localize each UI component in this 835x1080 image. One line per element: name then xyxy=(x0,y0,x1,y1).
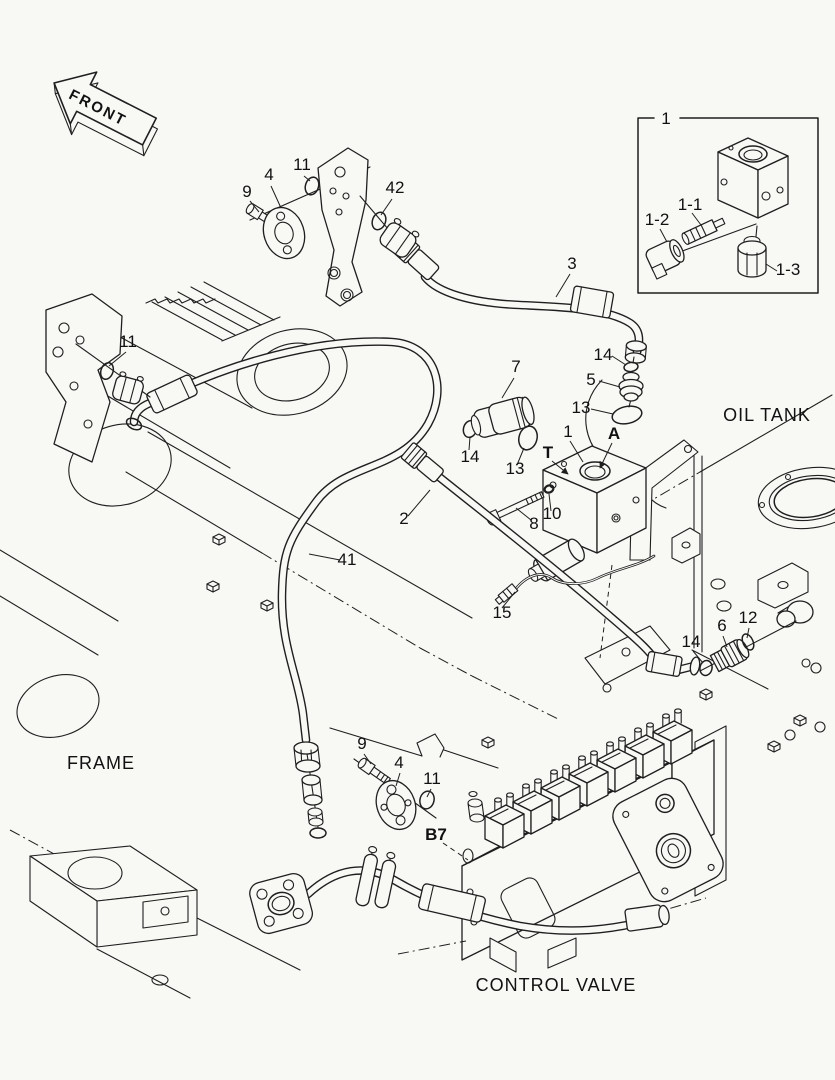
control-valve-label: CONTROL VALVE xyxy=(476,975,637,995)
o-ring-stack xyxy=(310,828,326,838)
inset-label-1-2: 1-2 xyxy=(645,210,670,229)
callout-9-top: 9 xyxy=(242,182,251,201)
elbow-7-assembly xyxy=(462,395,540,452)
oil-tank-label: OIL TANK xyxy=(723,405,811,425)
callout-4-bottom: 4 xyxy=(394,753,403,772)
hose-flange xyxy=(247,871,315,936)
bracket-left xyxy=(46,294,122,462)
inset-nut xyxy=(738,237,766,278)
flange-4-bottom xyxy=(370,775,423,835)
parts-diagram-page: 9 4 11 42 3 14 5 13 7 14 13 1 2 8 10 11 … xyxy=(0,0,835,1080)
o-ring-13-a xyxy=(611,404,644,427)
bottom-parts-cluster xyxy=(354,757,468,860)
frame-label: FRAME xyxy=(67,753,135,773)
callout-2: 2 xyxy=(399,509,408,528)
hose-41 xyxy=(125,342,438,740)
port-label-t: T xyxy=(543,443,554,462)
callout-12: 12 xyxy=(739,608,758,627)
callout-11-bottom: 11 xyxy=(423,769,441,788)
callout-14-a: 14 xyxy=(594,345,613,364)
callout-14-b: 14 xyxy=(461,447,480,466)
callout-7: 7 xyxy=(511,357,520,376)
callout-15: 15 xyxy=(493,603,512,622)
callout-9-bottom: 9 xyxy=(357,734,366,753)
inset-label-1-1: 1-1 xyxy=(678,195,703,214)
inset-coil xyxy=(644,237,689,279)
callout-8: 8 xyxy=(529,514,538,533)
port-label-b7: B7 xyxy=(425,825,447,844)
o-ring-14-a xyxy=(623,362,638,373)
elbow-fitting-7 xyxy=(468,395,537,441)
fitting-5 xyxy=(619,373,643,402)
hose41-fitting-stack xyxy=(294,742,326,838)
callout-1-main: 1 xyxy=(563,422,572,441)
callout-6: 6 xyxy=(717,616,726,635)
fitting-6 xyxy=(709,637,751,673)
callout-14-c: 14 xyxy=(682,632,701,651)
inset-label-1-3: 1-3 xyxy=(776,260,801,279)
o-ring-42 xyxy=(370,210,388,231)
fitting-6-cluster xyxy=(699,621,796,677)
diagram-canvas: 9 4 11 42 3 14 5 13 7 14 13 1 2 8 10 11 … xyxy=(0,0,835,1080)
flange-4-top xyxy=(257,202,311,264)
callout-13-b: 13 xyxy=(506,459,525,478)
callout-3: 3 xyxy=(567,254,576,273)
callout-13-a: 13 xyxy=(572,398,591,417)
callout-10: 10 xyxy=(543,504,562,523)
clamp-left xyxy=(111,371,145,405)
hose-2-fitting xyxy=(401,442,446,484)
callout-11-left: 11 xyxy=(119,332,137,351)
callout-11-top: 11 xyxy=(293,155,311,174)
callout-42: 42 xyxy=(386,178,405,197)
inset-spool xyxy=(681,216,726,246)
front-direction-arrow: FRONT xyxy=(37,57,168,168)
hose-clamp xyxy=(355,845,399,910)
callout-4-top: 4 xyxy=(264,165,273,184)
o-ring-11-top xyxy=(303,175,321,196)
left-parts-cluster xyxy=(46,294,150,462)
callout-41: 41 xyxy=(338,550,357,569)
port-label-a: A xyxy=(608,424,620,443)
callout-5: 5 xyxy=(586,370,595,389)
inset-box-number: 1 xyxy=(661,109,670,128)
inset-detail-box: 1 1-1 xyxy=(638,109,818,293)
bracket-top xyxy=(318,148,368,306)
